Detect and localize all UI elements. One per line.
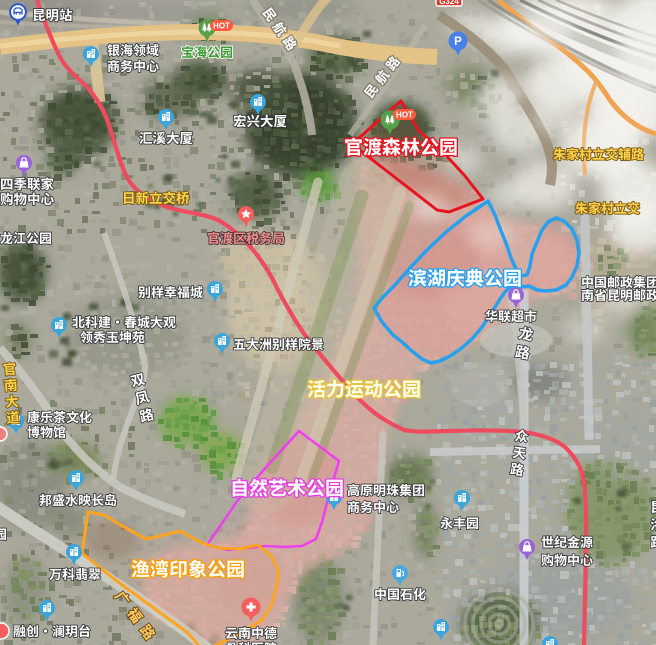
svg-text:HOT: HOT <box>396 111 413 120</box>
svg-text:P: P <box>454 36 462 48</box>
svg-text:HOT: HOT <box>213 22 230 31</box>
svg-text:G324: G324 <box>439 0 459 6</box>
